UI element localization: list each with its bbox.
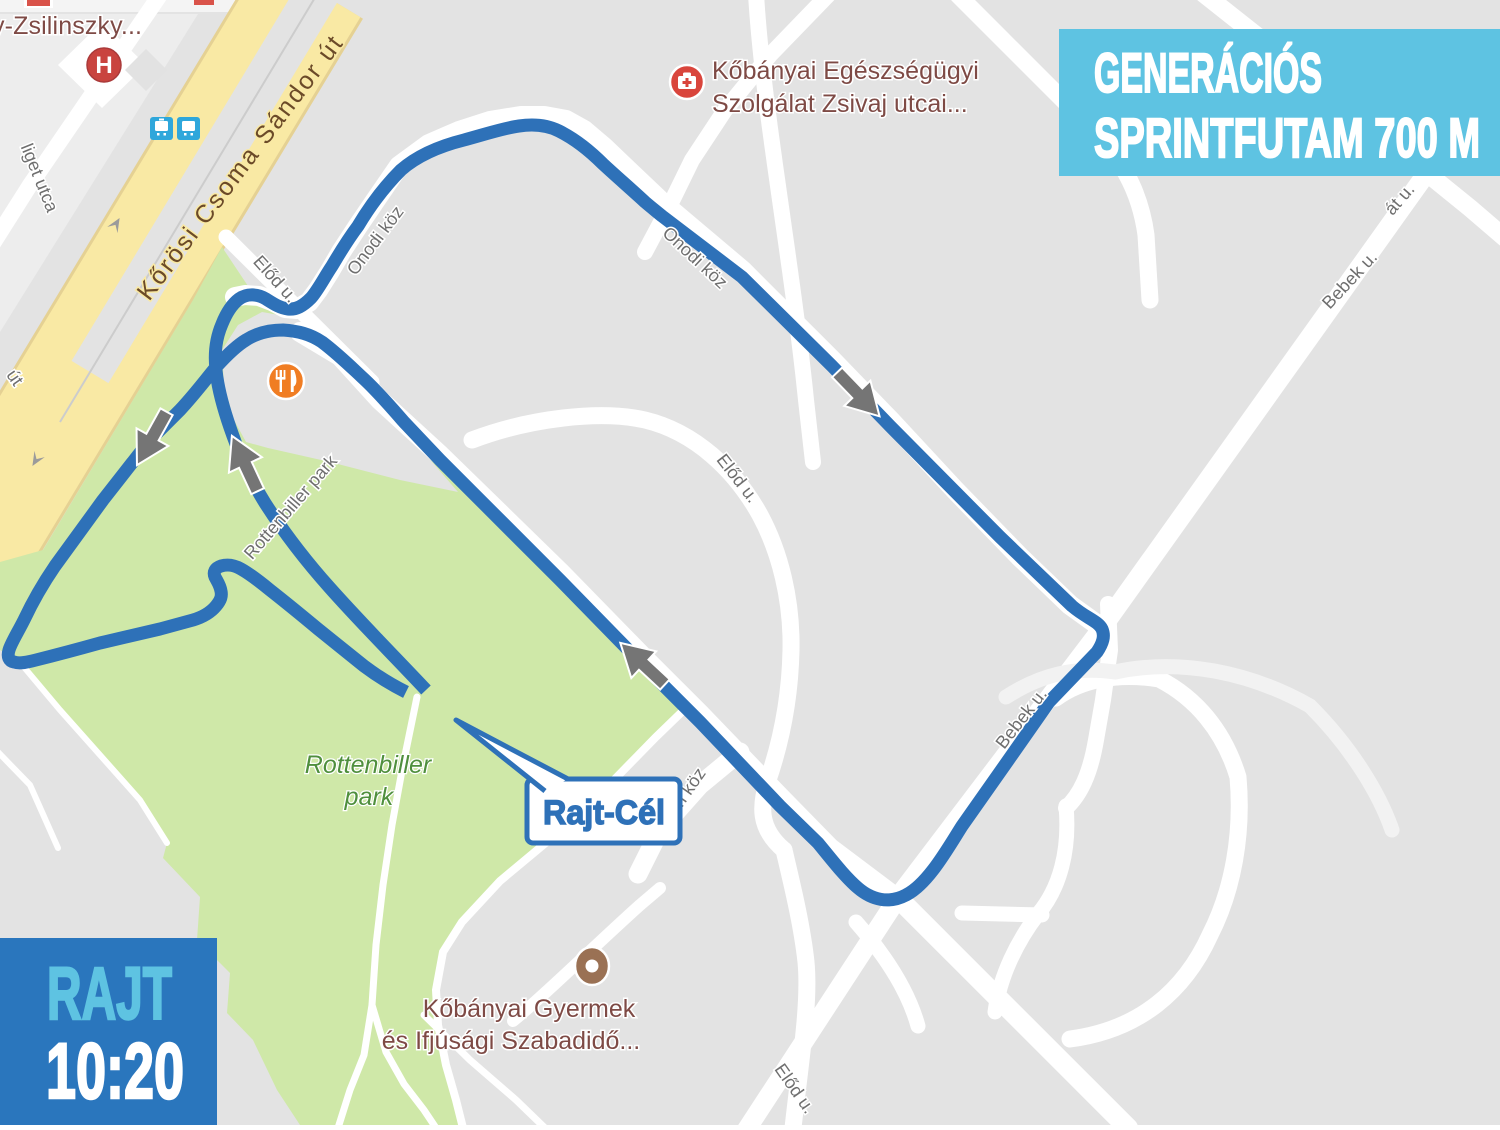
svg-text:H: H bbox=[95, 52, 112, 79]
svg-text:Rajt-Cél: Rajt-Cél bbox=[543, 794, 665, 832]
svg-text:SPRINTFUTAM 700 M: SPRINTFUTAM 700 M bbox=[1094, 106, 1480, 169]
svg-text:park: park bbox=[344, 783, 395, 811]
svg-text:10:20: 10:20 bbox=[46, 1026, 184, 1115]
svg-text:Kőbányai Egészségügyi: Kőbányai Egészségügyi bbox=[712, 57, 979, 85]
svg-text:és Ifjúsági Szabadidő...: és Ifjúsági Szabadidő... bbox=[382, 1027, 641, 1055]
svg-text:Rottenbiller: Rottenbiller bbox=[305, 751, 433, 779]
svg-text:RAJT: RAJT bbox=[47, 952, 172, 1035]
svg-text:y-Zsilinszky...: y-Zsilinszky... bbox=[0, 12, 142, 40]
svg-text:Szolgálat Zsivaj utcai...: Szolgálat Zsivaj utcai... bbox=[712, 90, 968, 118]
svg-text:Kőbányai Gyermek: Kőbányai Gyermek bbox=[423, 995, 636, 1023]
svg-text:GENERÁCIÓS: GENERÁCIÓS bbox=[1094, 41, 1322, 104]
